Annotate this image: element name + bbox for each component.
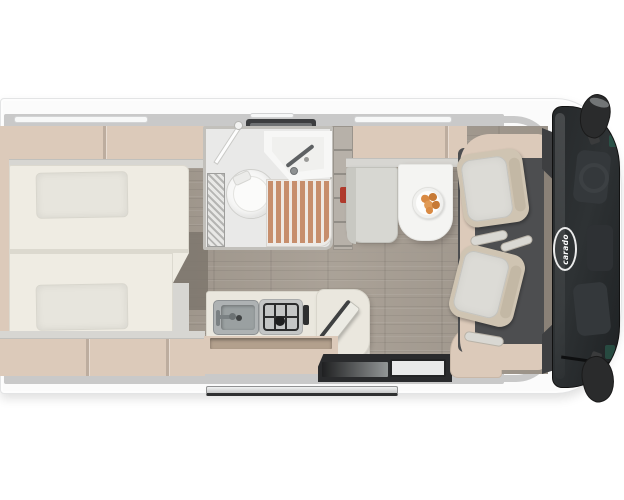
kitchen-sink-drain	[236, 315, 242, 321]
entry-step-pad	[390, 359, 446, 377]
kitchen-open-shelf	[210, 338, 332, 349]
bathroom	[203, 126, 333, 250]
steering-wheel	[579, 163, 609, 193]
window-dinette-top	[354, 116, 452, 123]
bathroom-mat	[207, 173, 225, 247]
dashboard-accent	[609, 135, 617, 147]
stove-control	[303, 305, 309, 325]
kitchen-faucet-knob	[229, 313, 236, 320]
shower-head	[290, 167, 298, 175]
dinette-bench	[346, 167, 398, 243]
bed-center-seam	[9, 249, 189, 253]
overhead-cabinet-bed-bottom	[0, 336, 205, 376]
window-bathroom-top	[250, 113, 294, 118]
brand-logo-text: carado	[561, 234, 570, 265]
stove	[259, 299, 303, 335]
entry-inner-step	[322, 362, 388, 377]
cabinet-divider	[166, 336, 169, 376]
food-plate	[412, 187, 444, 219]
cabinet-divider	[86, 336, 89, 376]
mirror-glass	[589, 96, 610, 110]
dashboard-accent	[605, 345, 615, 359]
window-rear-top	[14, 116, 148, 123]
swivel-seat-passenger	[455, 147, 531, 229]
brand-logo-badge: carado	[553, 227, 577, 271]
kitchen-base-cabinet	[204, 336, 338, 374]
bench-armrest	[347, 168, 356, 244]
shower-wood-grate	[268, 181, 330, 243]
stove-burner	[275, 316, 285, 326]
door-hinge	[234, 121, 243, 130]
pillow	[36, 283, 129, 331]
overhead-cabinet-edge-bottom	[0, 331, 205, 339]
sink-drain	[304, 157, 309, 162]
pillow	[36, 171, 129, 219]
exterior-entry-step	[206, 386, 398, 396]
seat-cushion	[460, 155, 514, 223]
kitchen-sink	[213, 300, 259, 335]
cab-seat-through-glass	[572, 281, 611, 336]
center-console	[587, 225, 613, 271]
camper-floorplan-topview: carado	[0, 0, 624, 500]
